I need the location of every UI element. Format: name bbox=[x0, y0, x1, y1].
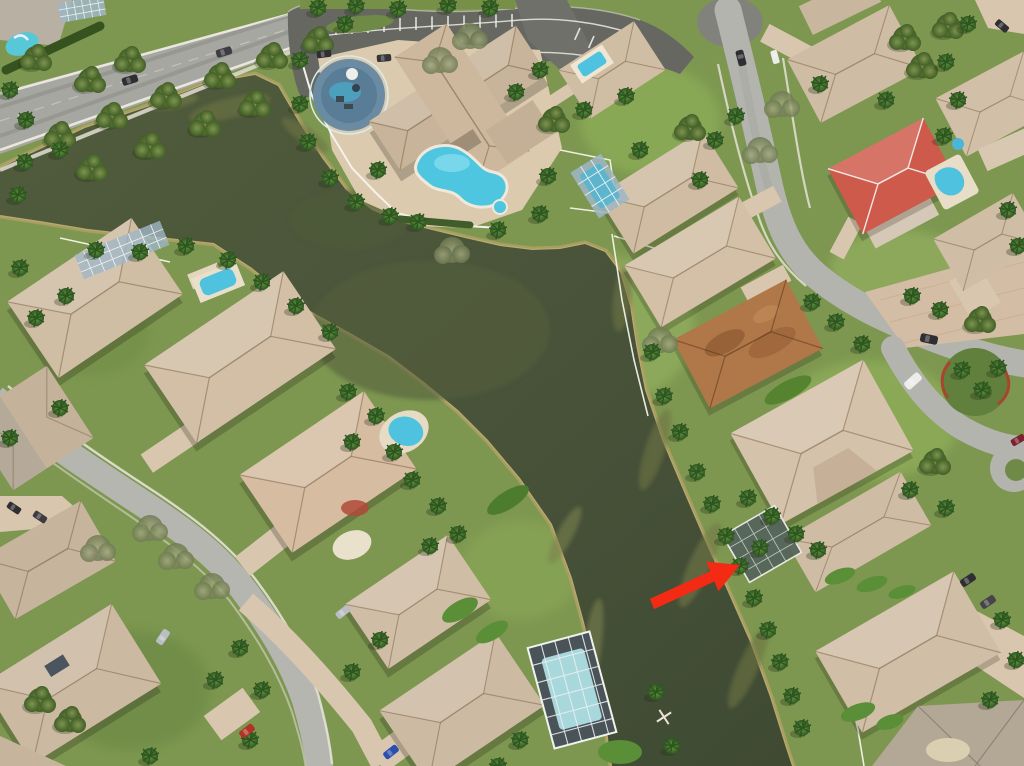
shade-canopy bbox=[346, 68, 358, 80]
pool bbox=[952, 138, 964, 150]
spa bbox=[493, 200, 507, 214]
aerial-photo bbox=[0, 0, 1024, 766]
sand-patio bbox=[926, 738, 970, 762]
landscaped-island bbox=[941, 348, 1009, 416]
aerial-photo-stage bbox=[0, 0, 1024, 766]
flower-bed bbox=[341, 500, 369, 516]
